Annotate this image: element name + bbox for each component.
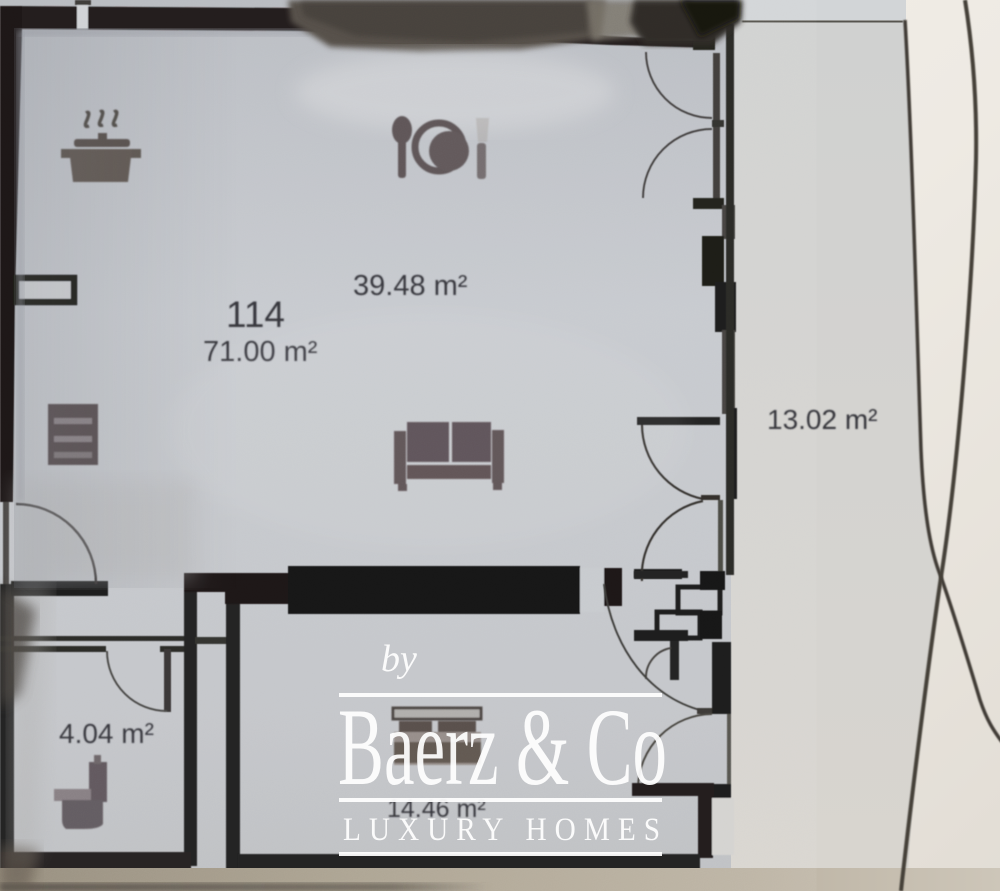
svg-text:13.02 m²: 13.02 m² xyxy=(767,404,878,435)
